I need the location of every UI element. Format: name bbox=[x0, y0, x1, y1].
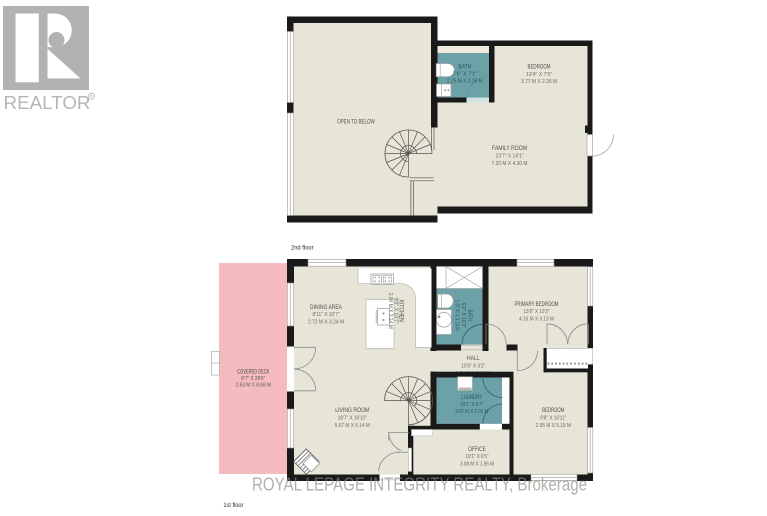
svg-text:10'8" X 3'2": 10'8" X 3'2" bbox=[461, 364, 485, 370]
svg-text:2.25 M X 2.16 M: 2.25 M X 2.16 M bbox=[447, 78, 483, 84]
svg-text:8'11" X 10'7": 8'11" X 10'7" bbox=[313, 312, 340, 318]
svg-text:3.07 M X 2.01 M: 3.07 M X 2.01 M bbox=[455, 409, 488, 415]
svg-text:13'8" X 10'3": 13'8" X 10'3" bbox=[524, 309, 550, 315]
svg-text:OPEN TO BELOW: OPEN TO BELOW bbox=[337, 118, 375, 125]
svg-text:23'7" X 14'1": 23'7" X 14'1" bbox=[496, 153, 524, 159]
svg-text:2nd floor: 2nd floor bbox=[291, 245, 314, 252]
svg-text:COVERED DECK: COVERED DECK bbox=[237, 368, 270, 375]
svg-text:2.63 M X 8.68 M: 2.63 M X 8.68 M bbox=[236, 382, 272, 388]
svg-text:18'7" X 16'10": 18'7" X 16'10" bbox=[338, 415, 367, 421]
svg-text:HALL: HALL bbox=[467, 355, 480, 362]
svg-text:2.72 M X 3.24 M: 2.72 M X 3.24 M bbox=[308, 319, 344, 325]
svg-text:9'8" X 16'11": 9'8" X 16'11" bbox=[540, 415, 566, 421]
svg-text:10'1" X 6'5": 10'1" X 6'5" bbox=[466, 454, 489, 460]
svg-text:1.87 M X 3.10 M: 1.87 M X 3.10 M bbox=[453, 300, 459, 331]
svg-text:8'7" X 28'6": 8'7" X 28'6" bbox=[241, 376, 265, 382]
svg-text:ROYAL LEPAGE INTEGRITY REALTY,: ROYAL LEPAGE INTEGRITY REALTY, Brokerage bbox=[252, 475, 587, 495]
svg-text:7'6" X 7'1": 7'6" X 7'1" bbox=[453, 72, 477, 78]
svg-text:LIVING ROOM: LIVING ROOM bbox=[335, 407, 369, 414]
svg-text:2.95 M X 5.15 M: 2.95 M X 5.15 M bbox=[536, 423, 571, 429]
svg-text:3.77 M X 2.26 M: 3.77 M X 2.26 M bbox=[521, 79, 557, 85]
svg-text:BEDROOM: BEDROOM bbox=[542, 407, 564, 414]
svg-text:4.16 M X 3.13 M: 4.16 M X 3.13 M bbox=[519, 317, 554, 323]
svg-text:3.08 M X 1.96 M: 3.08 M X 1.96 M bbox=[460, 461, 494, 467]
svg-text:6'2" X 10'2": 6'2" X 10'2" bbox=[460, 303, 466, 329]
svg-text:BATH: BATH bbox=[458, 63, 471, 70]
svg-text:12'4" X 7'5": 12'4" X 7'5" bbox=[526, 72, 552, 78]
svg-text:2.94 M X 3.24 M: 2.94 M X 3.24 M bbox=[387, 293, 393, 329]
svg-text:DINING AREA: DINING AREA bbox=[310, 304, 343, 311]
svg-text:REALTOR: REALTOR bbox=[4, 92, 91, 113]
svg-text:OFFICE: OFFICE bbox=[468, 446, 486, 453]
svg-text:1st floor: 1st floor bbox=[223, 502, 244, 509]
svg-text:7.20 M X 4.30 M: 7.20 M X 4.30 M bbox=[492, 161, 528, 167]
svg-text:PRIMARY BEDROOM: PRIMARY BEDROOM bbox=[515, 301, 559, 308]
svg-text:BATH: BATH bbox=[466, 310, 473, 321]
svg-text:BEDROOM: BEDROOM bbox=[528, 63, 551, 70]
svg-text:LAUNDRY: LAUNDRY bbox=[461, 394, 482, 401]
svg-text:5.67 M X 5.14 M: 5.67 M X 5.14 M bbox=[335, 423, 370, 429]
svg-text:10'1" X 6'7": 10'1" X 6'7" bbox=[460, 402, 483, 408]
svg-text:FAMILY ROOM: FAMILY ROOM bbox=[492, 145, 527, 152]
